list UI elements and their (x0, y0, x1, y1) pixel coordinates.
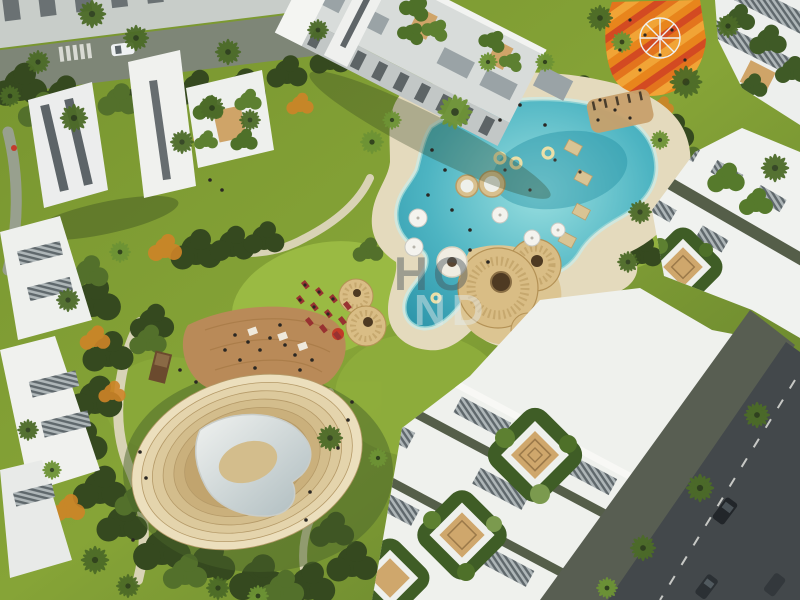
render-viewport: HO ND (0, 0, 800, 600)
street-umbrella-red (11, 145, 17, 151)
pool-bar-roundhouse (437, 247, 467, 277)
climbing-dome (640, 18, 680, 58)
aerial-render (0, 0, 800, 600)
